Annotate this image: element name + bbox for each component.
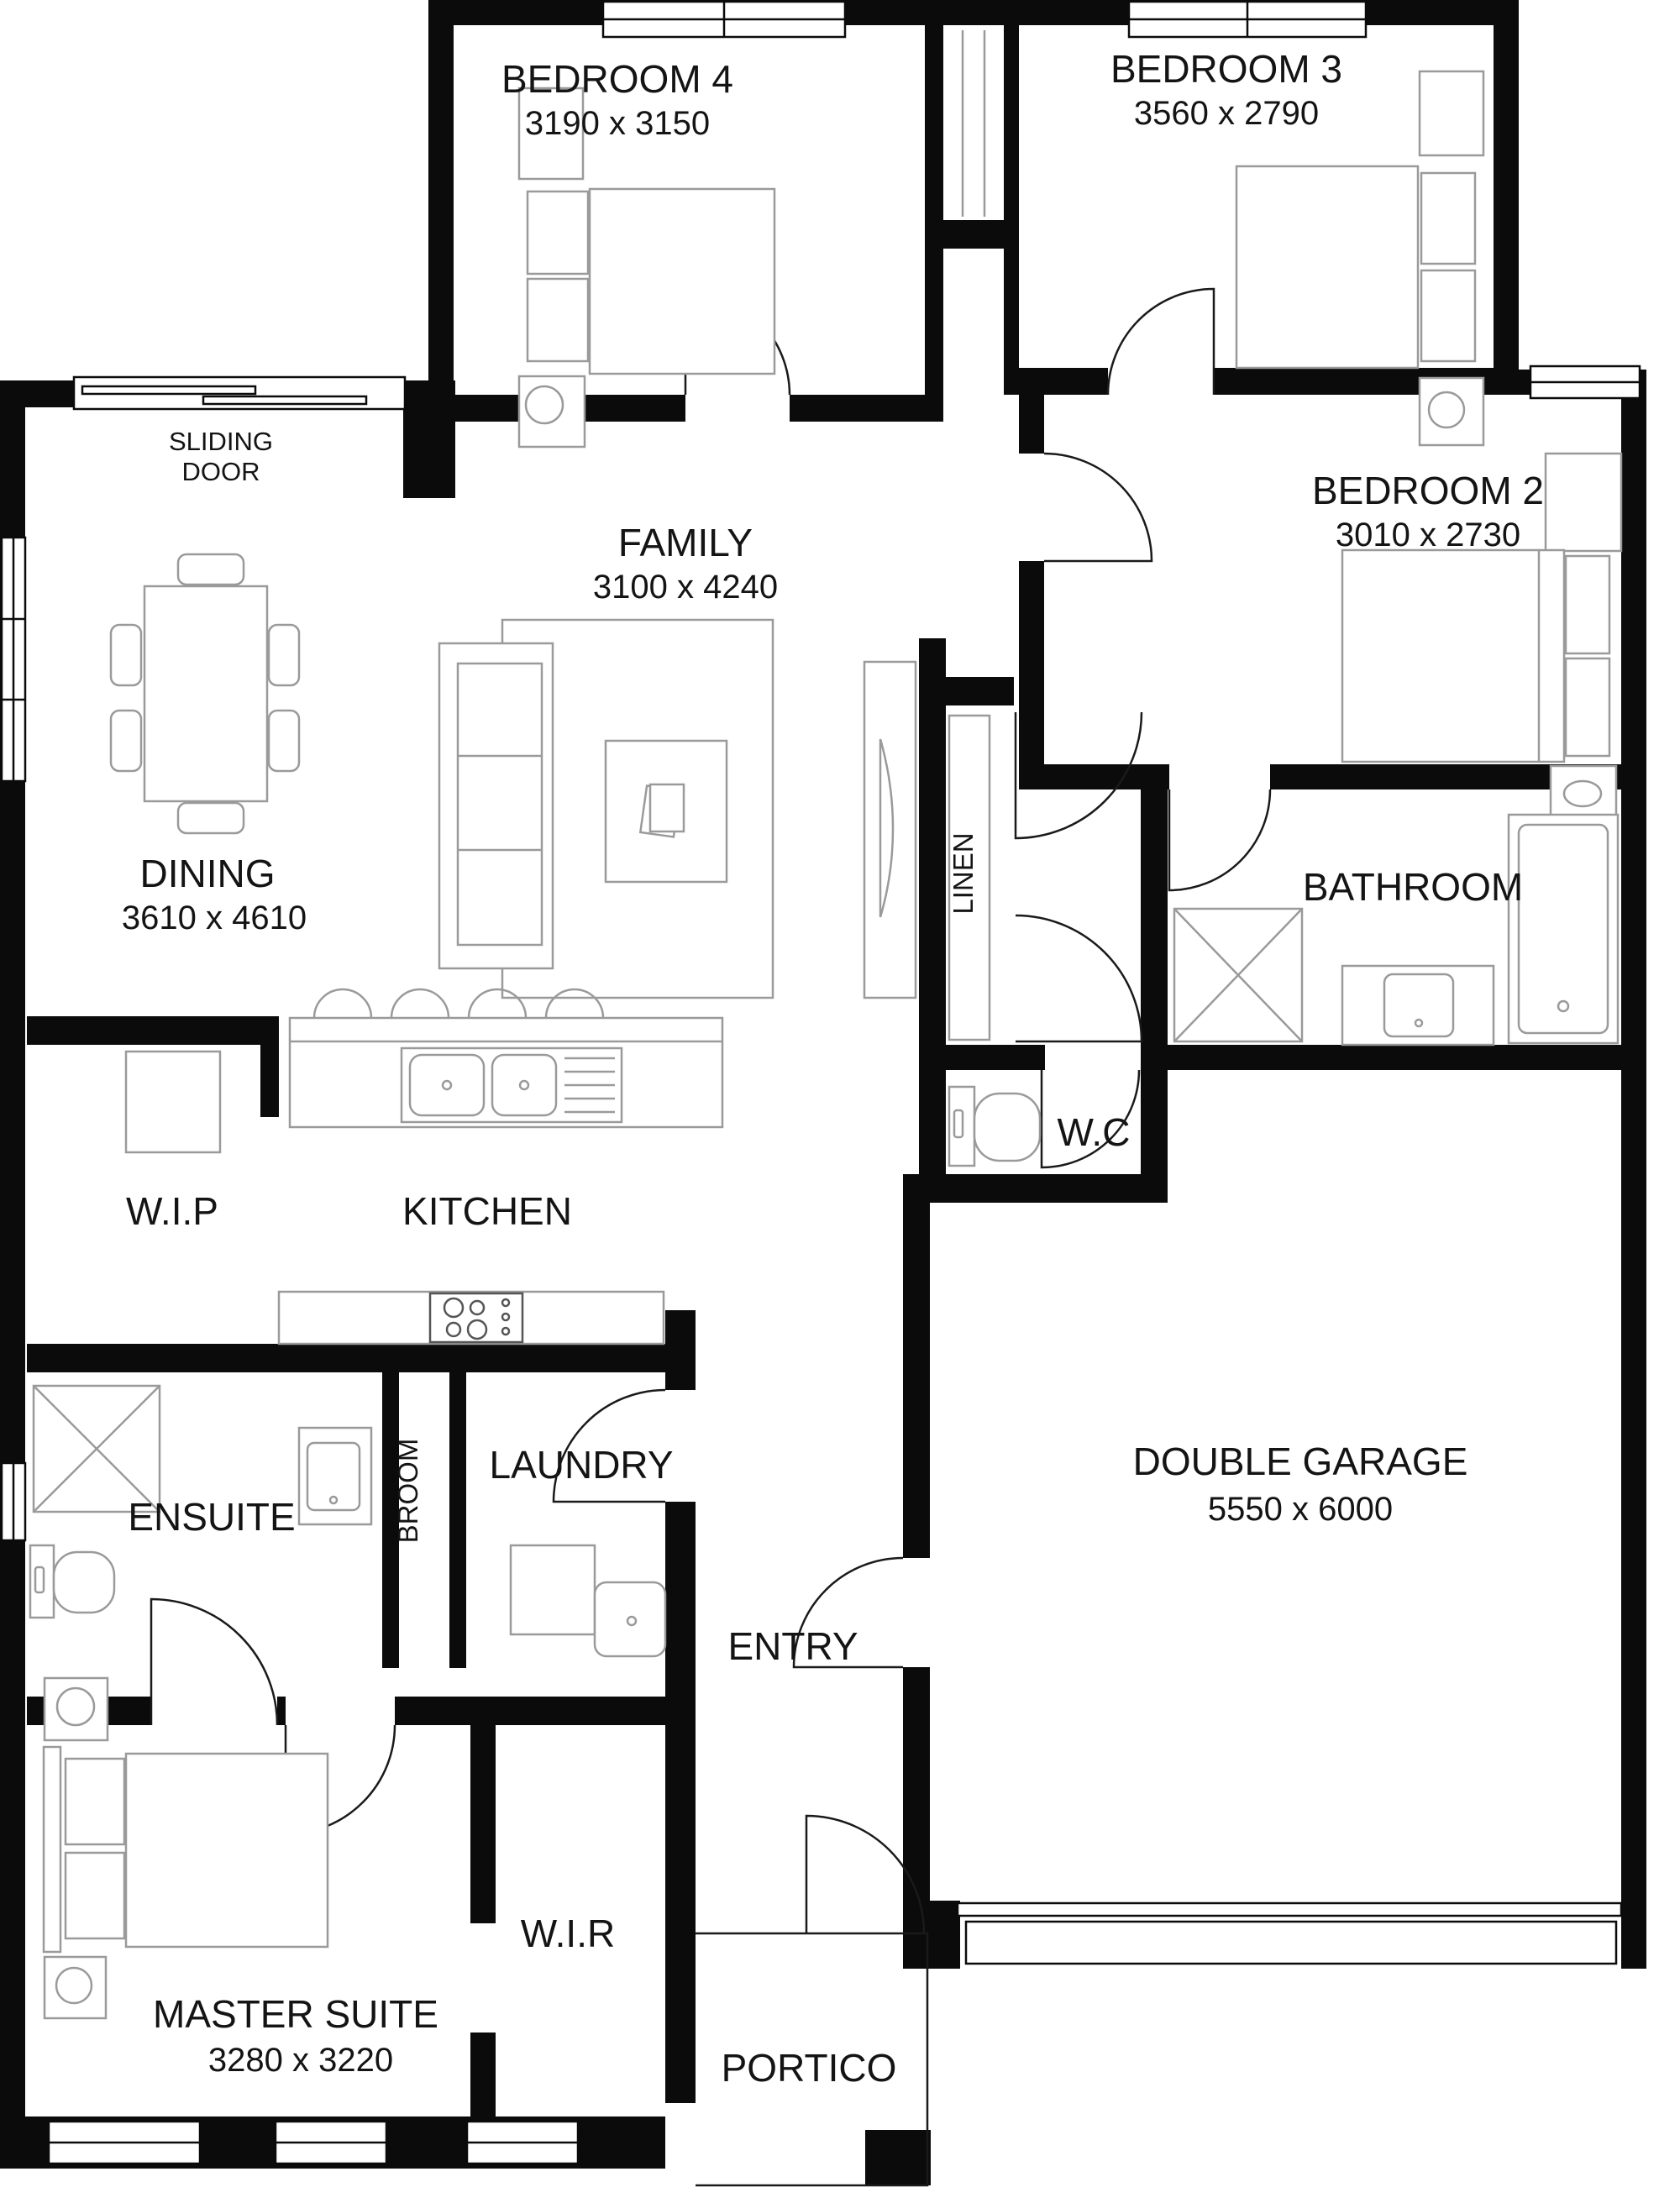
dining-setting bbox=[111, 554, 299, 833]
wall-segment bbox=[1621, 370, 1646, 1969]
shower bbox=[34, 1386, 160, 1512]
label-bedroom3-name: BEDROOM 3 bbox=[1110, 47, 1342, 91]
fridge bbox=[126, 1052, 220, 1152]
wall-segment bbox=[925, 25, 943, 422]
label-sliding-door-2: DOOR bbox=[182, 457, 260, 486]
dining-chair bbox=[111, 711, 141, 771]
bed-pillows bbox=[66, 1853, 124, 1938]
bed-pillows bbox=[528, 191, 588, 274]
wall-segment bbox=[470, 2033, 496, 2116]
wall-segment bbox=[1168, 1045, 1621, 1070]
dining-chair bbox=[178, 554, 244, 585]
bed-bedroom4 bbox=[519, 88, 774, 447]
wall-segment bbox=[449, 1372, 466, 1668]
wall-segment bbox=[1019, 395, 1044, 454]
wall-segment bbox=[1019, 368, 1108, 395]
table-lamp-icon bbox=[526, 386, 563, 423]
door-ensuite bbox=[151, 1599, 277, 1725]
bed-mattress bbox=[126, 1754, 328, 1947]
tv-unit bbox=[864, 662, 916, 998]
wall-segment bbox=[919, 638, 946, 1203]
bed-pillows bbox=[1566, 556, 1609, 653]
wall-segment bbox=[1019, 764, 1169, 789]
kitchen-island bbox=[290, 989, 722, 1127]
magazine bbox=[650, 784, 684, 831]
shower bbox=[1174, 909, 1302, 1041]
label-master-name: MASTER SUITE bbox=[153, 1992, 438, 2036]
table-lamp-icon bbox=[1429, 392, 1464, 427]
washing-machine bbox=[511, 1545, 595, 1634]
wall-segment bbox=[665, 1697, 696, 2103]
vanity bbox=[1342, 966, 1494, 1045]
dining-chair bbox=[269, 625, 299, 685]
label-ensuite: ENSUITE bbox=[128, 1495, 295, 1539]
window-bedroom4 bbox=[603, 2, 845, 37]
bed-mattress bbox=[590, 189, 774, 374]
wall-segment bbox=[395, 1697, 665, 1725]
wall-segment bbox=[277, 1697, 286, 1725]
wall-segment bbox=[1141, 789, 1168, 1203]
sofa-cushions bbox=[458, 664, 542, 945]
label-bedroom4-dims: 3190 x 3150 bbox=[525, 105, 710, 142]
bed-headboard bbox=[44, 1747, 60, 1952]
wall-segment bbox=[428, 0, 454, 382]
wall-segment bbox=[260, 1016, 279, 1117]
door-bathroom bbox=[1169, 789, 1270, 890]
label-wc: W.C bbox=[1058, 1110, 1131, 1154]
label-broom: BROOM bbox=[392, 1439, 423, 1544]
door-bedroom3 bbox=[1108, 289, 1214, 395]
wall-segment bbox=[1494, 0, 1519, 395]
stool bbox=[391, 989, 449, 1018]
window-bedroom2 bbox=[1530, 366, 1640, 398]
kitchen-bench bbox=[279, 1292, 664, 1344]
window-dining bbox=[2, 538, 25, 781]
stool bbox=[546, 989, 603, 1018]
label-bedroom3-dims: 3560 x 2790 bbox=[1134, 95, 1319, 132]
wall-segment bbox=[903, 1901, 960, 1969]
window-ensuite bbox=[2, 1463, 25, 1540]
robe-doors bbox=[963, 30, 984, 217]
bathroom-fixtures bbox=[1174, 815, 1618, 1045]
wall-segment bbox=[665, 1502, 696, 1697]
label-family-dims: 3100 x 4240 bbox=[593, 569, 778, 606]
wall-segment bbox=[946, 1045, 1045, 1070]
bed-pillows bbox=[1421, 270, 1475, 361]
dining-chair bbox=[111, 625, 141, 685]
window-master-1 bbox=[49, 2122, 200, 2164]
floor-plan: BEDROOM 4 3190 x 3150 BEDROOM 3 3560 x 2… bbox=[0, 0, 1680, 2203]
vanity bbox=[299, 1428, 371, 1524]
wall-segment bbox=[470, 1725, 496, 1923]
wall-segment bbox=[665, 1310, 696, 1390]
bathtub bbox=[1509, 815, 1618, 1043]
label-portico: PORTICO bbox=[722, 2046, 897, 2090]
wall-segment bbox=[27, 1344, 665, 1372]
bed-pillows bbox=[1566, 658, 1609, 756]
dining-chair bbox=[178, 803, 244, 833]
window-wir bbox=[467, 2122, 578, 2164]
stool bbox=[314, 989, 371, 1018]
table-lamp-icon bbox=[56, 1968, 92, 2003]
label-linen: LINEN bbox=[948, 832, 979, 914]
bed-pillows bbox=[1421, 173, 1475, 264]
sliding-door-glass bbox=[74, 377, 405, 409]
dining-chair bbox=[269, 711, 299, 771]
bed-pillows bbox=[66, 1759, 124, 1844]
label-garage-name: DOUBLE GARAGE bbox=[1133, 1440, 1468, 1483]
dining-table bbox=[144, 586, 267, 801]
label-entry: ENTRY bbox=[727, 1624, 858, 1668]
label-wip: W.I.P bbox=[126, 1189, 218, 1233]
label-family-name: FAMILY bbox=[618, 521, 753, 564]
label-wir: W.I.R bbox=[521, 1912, 615, 1955]
wall-segment bbox=[943, 677, 1014, 705]
toilet bbox=[949, 1087, 1040, 1166]
wall-segment bbox=[1004, 25, 1019, 395]
label-sliding-door-1: SLIDING bbox=[169, 427, 273, 456]
wall-segment bbox=[865, 2130, 931, 2185]
wall-segment bbox=[27, 1016, 279, 1045]
garage-door bbox=[958, 1903, 1621, 1964]
label-bedroom2-dims: 3010 x 2730 bbox=[1336, 517, 1520, 553]
label-garage-dims: 5550 x 6000 bbox=[1208, 1491, 1393, 1528]
label-bathroom: BATHROOM bbox=[1303, 865, 1523, 909]
bed-pillows bbox=[528, 279, 588, 361]
window-master-2 bbox=[276, 2122, 386, 2164]
label-kitchen: KITCHEN bbox=[402, 1189, 572, 1233]
label-bedroom2-name: BEDROOM 2 bbox=[1312, 469, 1544, 512]
toilet bbox=[30, 1545, 114, 1618]
wall-segment bbox=[1019, 561, 1044, 789]
wall-segment bbox=[790, 395, 925, 422]
stool bbox=[469, 989, 526, 1018]
bed-mattress bbox=[1342, 550, 1564, 762]
label-laundry: LAUNDRY bbox=[490, 1443, 674, 1487]
label-dining-dims: 3610 x 4610 bbox=[122, 900, 307, 936]
wardrobe bbox=[1546, 454, 1621, 551]
door-linen-bottom bbox=[1016, 915, 1142, 1041]
wall-segment bbox=[903, 1203, 930, 1558]
table-lamp-icon bbox=[1564, 781, 1601, 806]
window-bedroom3 bbox=[1129, 2, 1366, 37]
bed-mattress bbox=[1236, 166, 1418, 368]
wall-segment bbox=[903, 1667, 930, 1901]
bedside-table bbox=[1420, 71, 1483, 155]
table-lamp-icon bbox=[57, 1688, 94, 1725]
family-setting bbox=[439, 620, 916, 998]
wall-segment bbox=[403, 380, 455, 498]
label-dining-name: DINING bbox=[140, 852, 276, 895]
laundry-fixtures bbox=[511, 1545, 665, 1656]
label-bedroom4-name: BEDROOM 4 bbox=[501, 57, 733, 101]
label-master-dims: 3280 x 3220 bbox=[208, 2042, 393, 2079]
door-bedroom2 bbox=[1044, 454, 1152, 561]
